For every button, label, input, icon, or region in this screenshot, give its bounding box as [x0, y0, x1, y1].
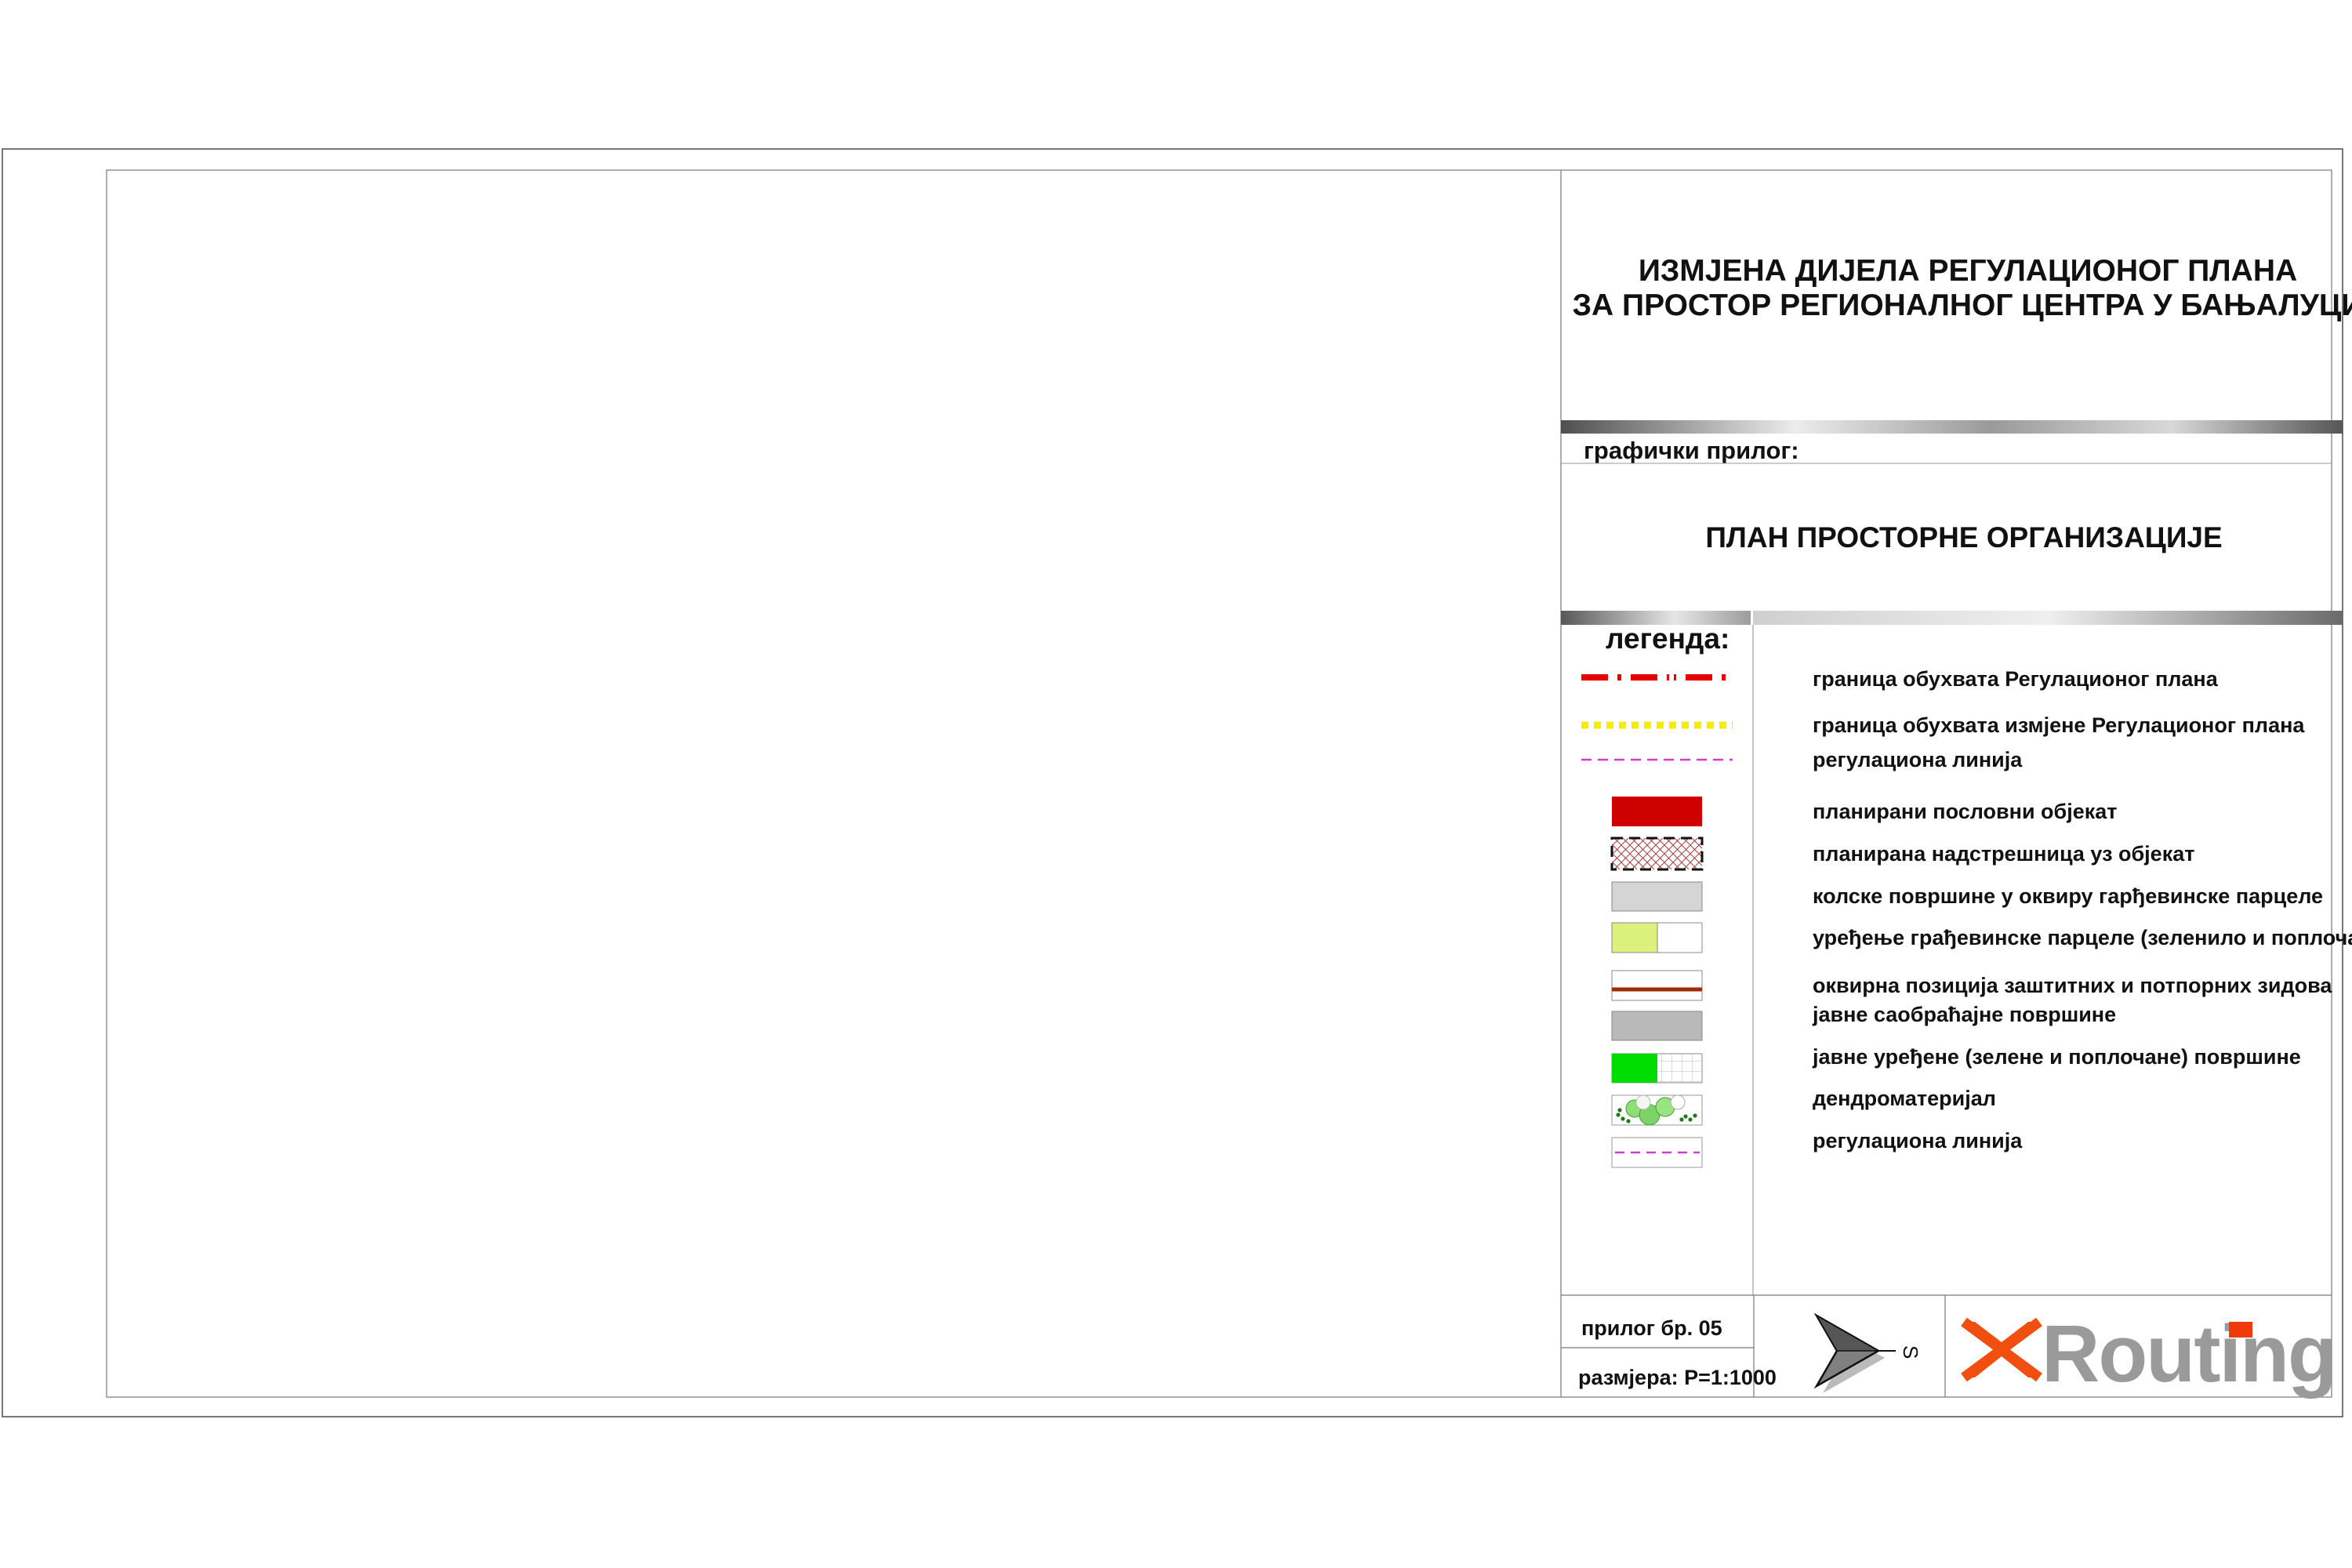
- svg-text:колске површине у оквиру гарђе: колске површине у оквиру гарђевинске пар…: [1813, 884, 2323, 908]
- svg-text:графички прилог:: графички прилог:: [1584, 437, 1799, 464]
- svg-text:уређење грађевинске парцеле (з: уређење грађевинске парцеле (зеленило и …: [1813, 926, 2352, 949]
- svg-text:дендроматеријал: дендроматеријал: [1813, 1087, 1996, 1110]
- svg-text:прилог бр. 05: прилог бр. 05: [1581, 1316, 1722, 1340]
- svg-text:граница обухвата Регулационог: граница обухвата Регулационог плана: [1813, 667, 2219, 691]
- svg-text:размјера: P=1:1000: размјера: P=1:1000: [1578, 1366, 1777, 1389]
- svg-text:планирани пословни објекат: планирани пословни објекат: [1813, 800, 2118, 823]
- svg-text:ИЗМЈЕНА ДИЈЕЛА РЕГУЛАЦИОНОГ ПЛ: ИЗМЈЕНА ДИЈЕЛА РЕГУЛАЦИОНОГ ПЛАНА: [1639, 254, 2297, 288]
- svg-text:S: S: [1899, 1345, 1922, 1359]
- svg-text:планирана надстрешница уз обје: планирана надстрешница уз објекат: [1813, 842, 2194, 866]
- svg-text:регулациона линија: регулациона линија: [1813, 748, 2023, 771]
- svg-text:јавне уређене (зелене и поплоч: јавне уређене (зелене и поплочане) површ…: [1812, 1045, 2301, 1069]
- svg-text:Routing: Routing: [2042, 1308, 2336, 1399]
- svg-text:ЗА ПРОСТОР РЕГИОНАЛНОГ ЦЕНТРА: ЗА ПРОСТОР РЕГИОНАЛНОГ ЦЕНТРА У БАЊАЛУЦИ: [1573, 289, 2352, 322]
- svg-text:оквирна позиција заштитних и п: оквирна позиција заштитних и потпорних з…: [1813, 974, 2332, 997]
- svg-text:граница обухвата измјене Регул: граница обухвата измјене Регулационог пл…: [1813, 713, 2305, 737]
- svg-text:легенда:: легенда:: [1606, 622, 1730, 655]
- svg-text:јавне саобраћајне површине: јавне саобраћајне површине: [1812, 1003, 2116, 1026]
- svg-text:ПЛАН ПРОСТОРНЕ ОРГАНИЗАЦИЈЕ: ПЛАН ПРОСТОРНЕ ОРГАНИЗАЦИЈЕ: [1705, 521, 2222, 554]
- svg-text:регулациона линија: регулациона линија: [1813, 1129, 2023, 1152]
